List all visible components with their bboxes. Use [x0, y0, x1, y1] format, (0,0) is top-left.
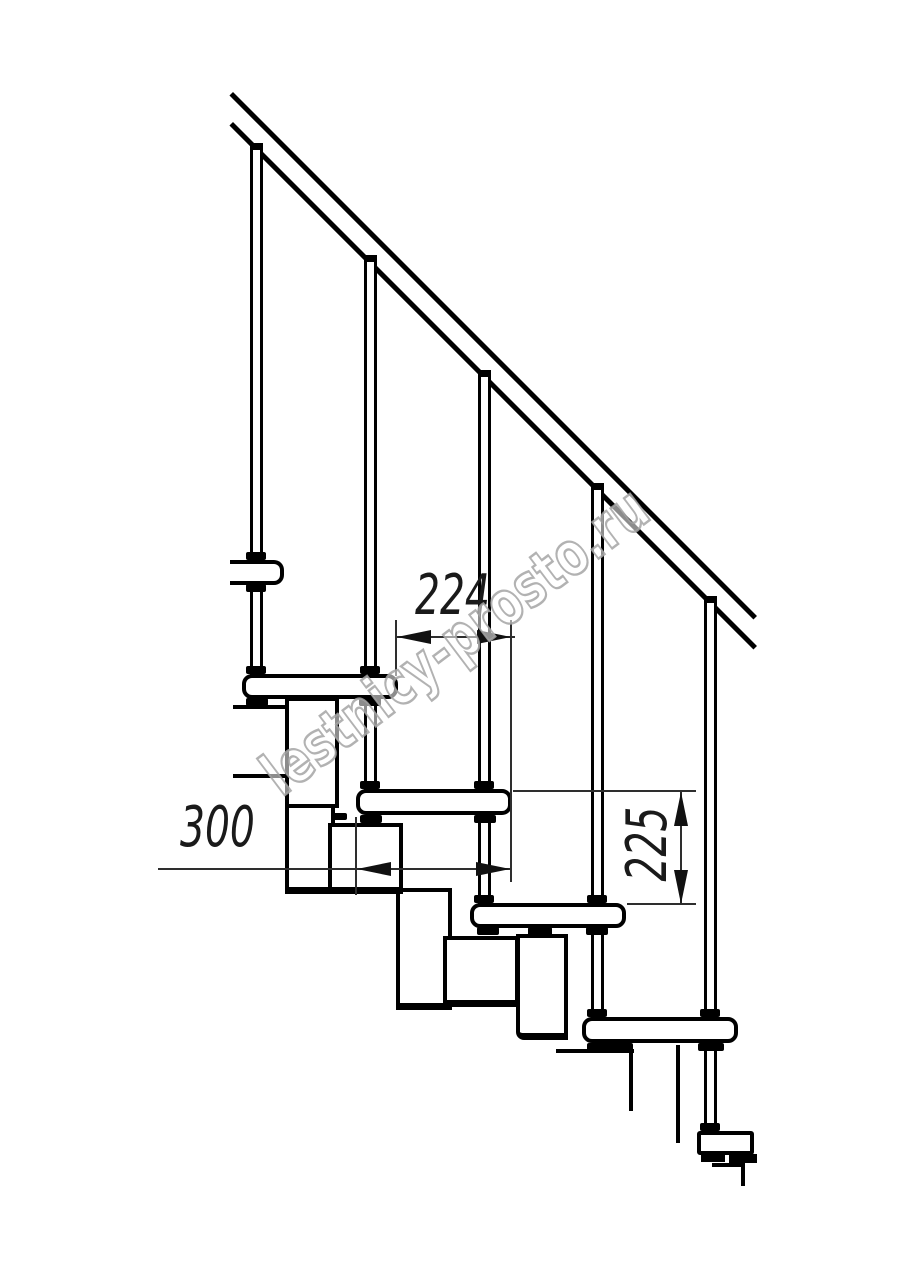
fitting-collar: [587, 1009, 607, 1017]
rail-end-bracket: [230, 560, 284, 585]
dimension-arrow: [476, 862, 510, 876]
fitting-collar: [474, 895, 494, 903]
fitting-collar: [587, 895, 607, 903]
extension-line: [513, 790, 696, 792]
tread-3: [470, 903, 626, 928]
dimension-arrow: [357, 862, 391, 876]
drawing-canvas: 224 300 225 lestnicy-prosto.ru: [0, 0, 914, 1280]
fitting-collar: [528, 927, 552, 936]
fitting-collar: [698, 1043, 724, 1051]
support-module-5: [443, 936, 519, 1007]
handrail-upper-bar: [229, 92, 757, 620]
baluster-1: [250, 150, 263, 675]
baluster-5: [704, 603, 717, 1135]
dimension-label-rise: 225: [620, 819, 676, 882]
fitting-collar: [246, 584, 266, 592]
extension-line: [510, 620, 512, 882]
fitting-collar: [700, 1009, 720, 1017]
fitting-collar: [477, 927, 499, 935]
fitting-collar: [246, 698, 268, 706]
lower-structure-line: [629, 1049, 633, 1111]
fitting-collar: [474, 815, 496, 823]
floor-fitting: [701, 1152, 725, 1162]
fitting-collar: [360, 781, 380, 789]
floor-step-line: [712, 1163, 742, 1167]
dimension-label-depth: 300: [180, 800, 250, 856]
fitting-collar: [331, 813, 347, 820]
support-module-6: [516, 934, 568, 1040]
fitting-collar: [246, 552, 266, 560]
fitting-collar: [586, 927, 608, 935]
fitting-collar: [474, 781, 494, 789]
tread-4: [582, 1017, 738, 1043]
dimension-line-300: [158, 868, 510, 870]
support-module-3: [328, 823, 403, 894]
watermark-text: lestnicy-prosto.ru: [250, 487, 646, 807]
fitting-collar: [360, 815, 382, 823]
lower-structure-line: [676, 1045, 680, 1143]
fitting-collar: [587, 1043, 633, 1051]
fitting-collar: [700, 1123, 720, 1131]
extension-line: [355, 817, 357, 895]
fitting-collar: [246, 666, 266, 674]
tread-2: [356, 789, 512, 815]
